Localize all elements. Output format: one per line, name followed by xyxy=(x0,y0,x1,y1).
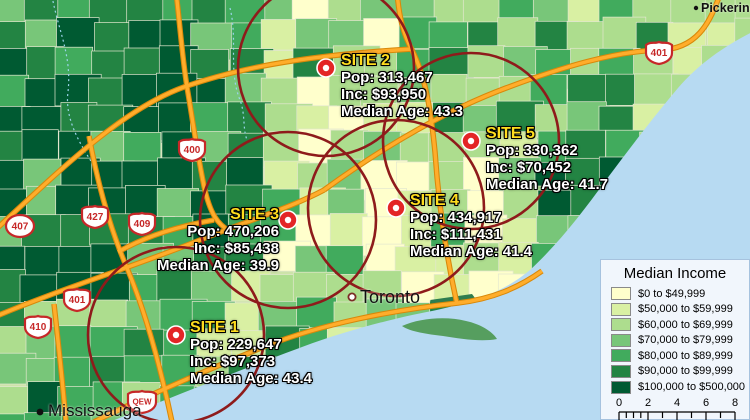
legend-swatch-0 xyxy=(611,287,631,300)
map-viewport[interactable]: 407 427 409 400 401 410 xyxy=(0,0,750,420)
scale-ticks xyxy=(619,412,735,420)
svg-text:2: 2 xyxy=(645,397,651,409)
svg-text:4: 4 xyxy=(674,397,680,409)
toronto-label: Toronto xyxy=(360,287,420,308)
svg-text:8: 8 xyxy=(732,397,738,409)
svg-text:0: 0 xyxy=(616,397,622,409)
pickering-label: Pickering xyxy=(701,1,750,15)
scale-numbers: 0 2 4 6 8 xyxy=(616,397,738,409)
mississauga-dot xyxy=(37,409,44,416)
shield-401-west-icon: 401 xyxy=(64,289,90,311)
site5-marker[interactable] xyxy=(462,132,480,150)
shield-410-icon: 410 xyxy=(25,316,51,338)
svg-text:401: 401 xyxy=(651,48,668,59)
legend-swatch-6 xyxy=(611,381,631,394)
toronto-dot xyxy=(348,293,355,300)
legend-row: $0 to $49,999 xyxy=(611,287,741,300)
legend-row: $50,000 to $59,999 xyxy=(611,303,741,316)
svg-text:410: 410 xyxy=(30,322,47,333)
svg-text:401: 401 xyxy=(69,295,86,306)
legend-label-4: $80,000 to $89,999 xyxy=(638,350,733,362)
shield-407-icon: 407 xyxy=(6,215,34,237)
shield-427-icon: 427 xyxy=(82,206,108,228)
legend-row: $100,000 to $500,000 xyxy=(611,381,741,394)
site3-marker[interactable] xyxy=(279,211,297,229)
legend-swatch-2 xyxy=(611,318,631,331)
legend-label-2: $60,000 to $69,999 xyxy=(638,319,733,331)
svg-text:409: 409 xyxy=(134,219,151,230)
shield-409-icon: 409 xyxy=(129,213,155,235)
legend-label-6: $100,000 to $500,000 xyxy=(638,381,745,393)
site4-marker[interactable] xyxy=(387,199,405,217)
legend-panel: Median Income $0 to $49,999 $50,000 to $… xyxy=(600,259,750,420)
legend-label-3: $70,000 to $79,999 xyxy=(638,334,733,346)
scale-bar: 0 2 4 6 8 Kilometers xyxy=(609,396,743,420)
legend-swatch-1 xyxy=(611,303,631,316)
legend-swatch-4 xyxy=(611,349,631,362)
svg-text:427: 427 xyxy=(87,212,104,223)
svg-text:400: 400 xyxy=(184,145,201,156)
site1-marker[interactable] xyxy=(167,326,185,344)
legend-row: $80,000 to $89,999 xyxy=(611,349,741,362)
shield-400-icon: 400 xyxy=(179,139,205,161)
legend-label-0: $0 to $49,999 xyxy=(638,288,705,300)
legend-row: $60,000 to $69,999 xyxy=(611,318,741,331)
pickering-dot xyxy=(694,6,698,10)
mississauga-label: Mississauga xyxy=(48,401,142,420)
site2-marker[interactable] xyxy=(317,59,335,77)
svg-text:407: 407 xyxy=(12,222,29,233)
legend-swatch-3 xyxy=(611,334,631,347)
legend-label-5: $90,000 to $99,999 xyxy=(638,365,733,377)
legend-label-1: $50,000 to $59,999 xyxy=(638,303,733,315)
svg-text:6: 6 xyxy=(703,397,709,409)
shield-401-east-icon: 401 xyxy=(646,42,672,64)
legend-swatch-5 xyxy=(611,365,631,378)
legend-title: Median Income xyxy=(609,265,741,282)
legend-row: $70,000 to $79,999 xyxy=(611,334,741,347)
legend-row: $90,000 to $99,999 xyxy=(611,365,741,378)
